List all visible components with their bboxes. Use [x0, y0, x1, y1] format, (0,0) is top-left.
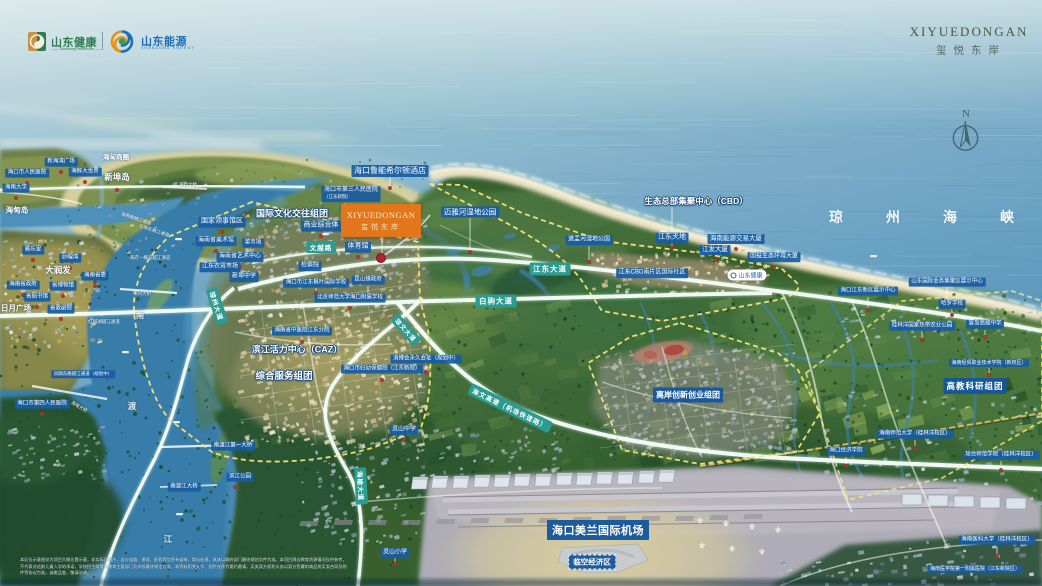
svg-text:N: N — [962, 108, 970, 120]
